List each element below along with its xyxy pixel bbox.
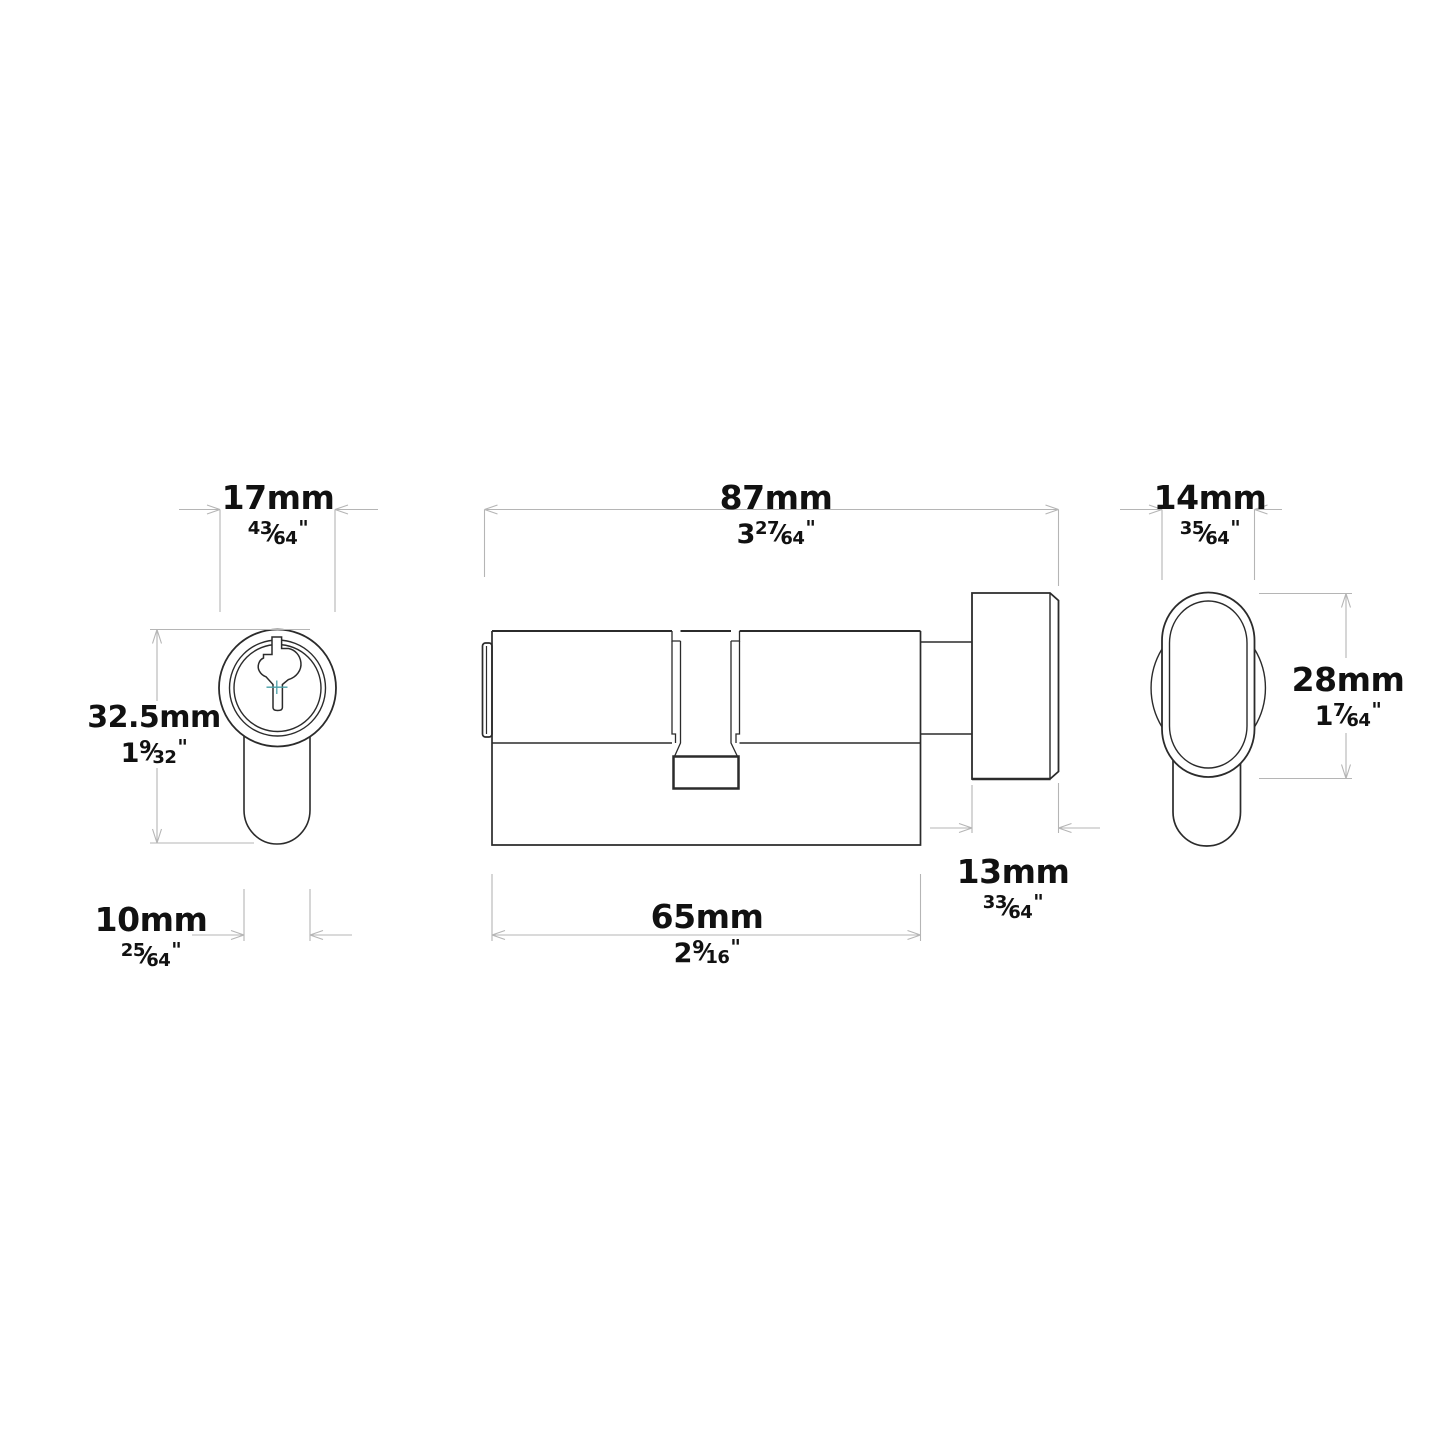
end-view	[1151, 593, 1265, 847]
dim-28mm-inches: 17⁄64"	[1292, 700, 1405, 730]
thumbturn-knob	[972, 593, 1059, 779]
dim-87mm-label: 87mm 327⁄64"	[720, 481, 833, 548]
dim-65mm-label: 65mm 29⁄16"	[651, 900, 764, 967]
dim-65mm-inches: 29⁄16"	[651, 937, 764, 967]
dim-10mm-label: 10mm 25⁄64"	[95, 903, 208, 970]
dimension-drawing: 17mm 43⁄64" 87mm 327⁄64" 14mm 35⁄64" 32.…	[0, 0, 1445, 1445]
body-outline	[492, 631, 921, 845]
dim-32-5mm-inches: 19⁄32"	[87, 737, 221, 767]
dim-17mm-value: 17mm	[222, 481, 335, 514]
dim-13mm-value: 13mm	[957, 855, 1070, 888]
dim-65mm-value: 65mm	[651, 900, 764, 933]
dim-14mm-value: 14mm	[1154, 481, 1267, 514]
dim-17mm-label: 17mm 43⁄64"	[222, 481, 335, 548]
cam-slot-right	[731, 631, 740, 641]
cam-tab	[674, 757, 739, 789]
barrel-bulge-right	[1255, 649, 1266, 727]
dim-13mm-inches: 33⁄64"	[957, 892, 1070, 922]
front-view	[219, 630, 336, 845]
dim-28mm-value: 28mm	[1292, 663, 1405, 696]
dim-87mm-value: 87mm	[720, 481, 833, 514]
dim-13mm-label: 13mm 33⁄64"	[957, 855, 1070, 922]
dim-10mm-lines	[192, 889, 352, 941]
dim-28mm-label: 28mm 17⁄64"	[1292, 663, 1405, 730]
dim-10mm-inches: 25⁄64"	[95, 940, 208, 970]
dim-14mm-label: 14mm 35⁄64"	[1154, 481, 1267, 548]
dim-14mm-inches: 35⁄64"	[1154, 518, 1267, 548]
thumbturn-neck	[921, 642, 973, 734]
dim-13mm-lines	[930, 783, 1100, 833]
end-cap	[483, 643, 493, 737]
dim-32-5mm-label: 32.5mm 19⁄32"	[87, 703, 221, 767]
dim-10mm-value: 10mm	[95, 903, 208, 936]
dim-17mm-inches: 43⁄64"	[222, 518, 335, 548]
dim-87mm-inches: 327⁄64"	[720, 518, 833, 548]
dim-32-5mm-value: 32.5mm	[87, 703, 221, 733]
cam-slot-left	[672, 631, 681, 641]
barrel-bulge-left	[1151, 649, 1162, 727]
